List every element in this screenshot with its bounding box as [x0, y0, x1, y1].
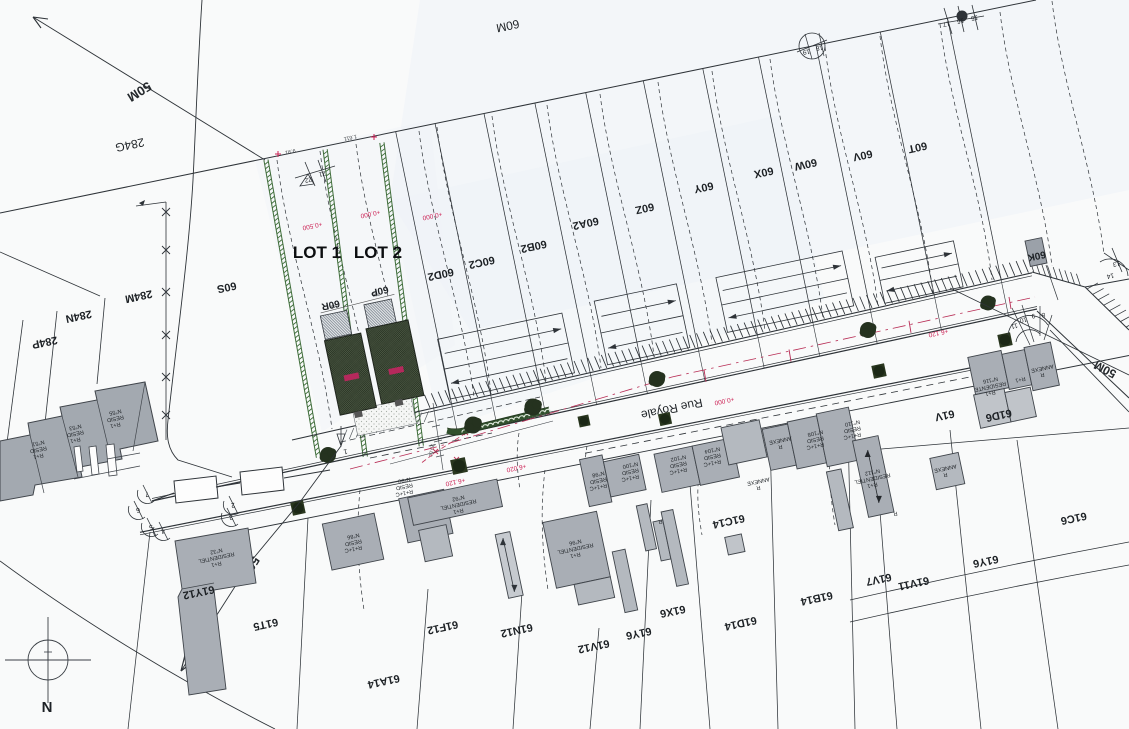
- svg-text:LOT 2: LOT 2: [354, 243, 402, 262]
- svg-text:N: N: [42, 699, 53, 716]
- svg-text:LOT 1: LOT 1: [293, 243, 341, 262]
